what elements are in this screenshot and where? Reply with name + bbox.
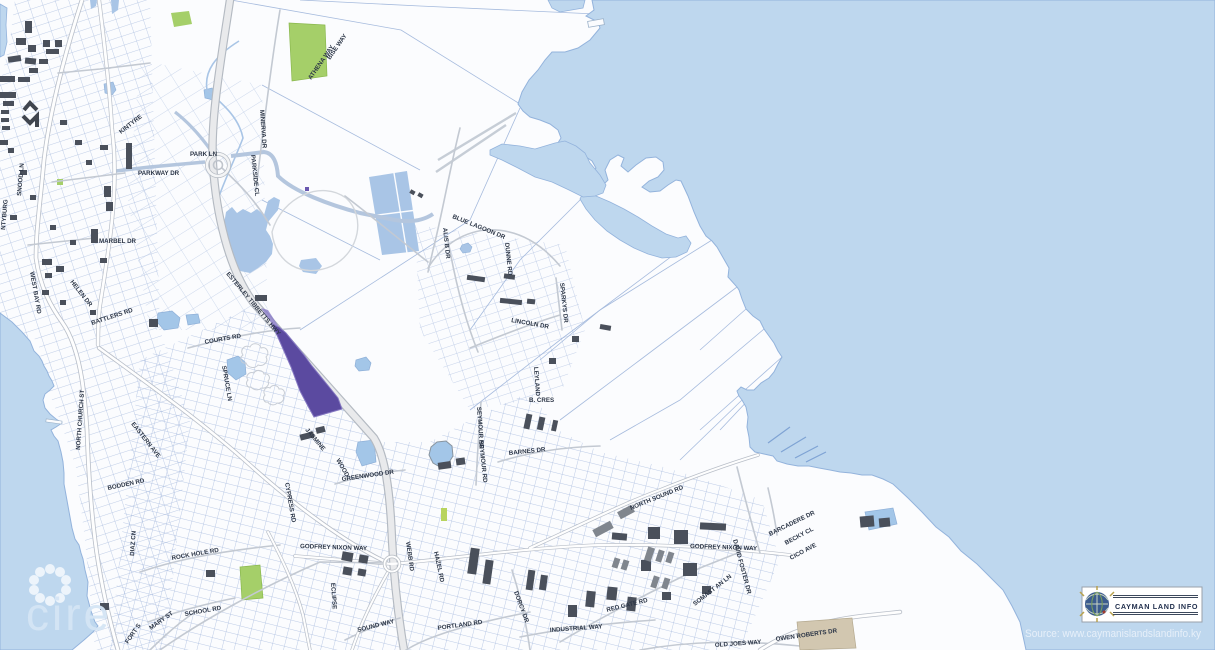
svg-text:Source: www.caymanislandslandi: Source: www.caymanislandslandinfo.ky: [1025, 628, 1201, 640]
svg-text:PARK LN: PARK LN: [190, 151, 218, 158]
svg-text:B. CRES: B. CRES: [529, 397, 554, 404]
svg-text:CAYMAN LAND INFO: CAYMAN LAND INFO: [1115, 602, 1198, 611]
svg-text:MARBEL DR: MARBEL DR: [99, 238, 137, 245]
svg-text:cire: cire: [26, 588, 112, 640]
svg-text:PARKWAY DR: PARKWAY DR: [138, 170, 180, 177]
